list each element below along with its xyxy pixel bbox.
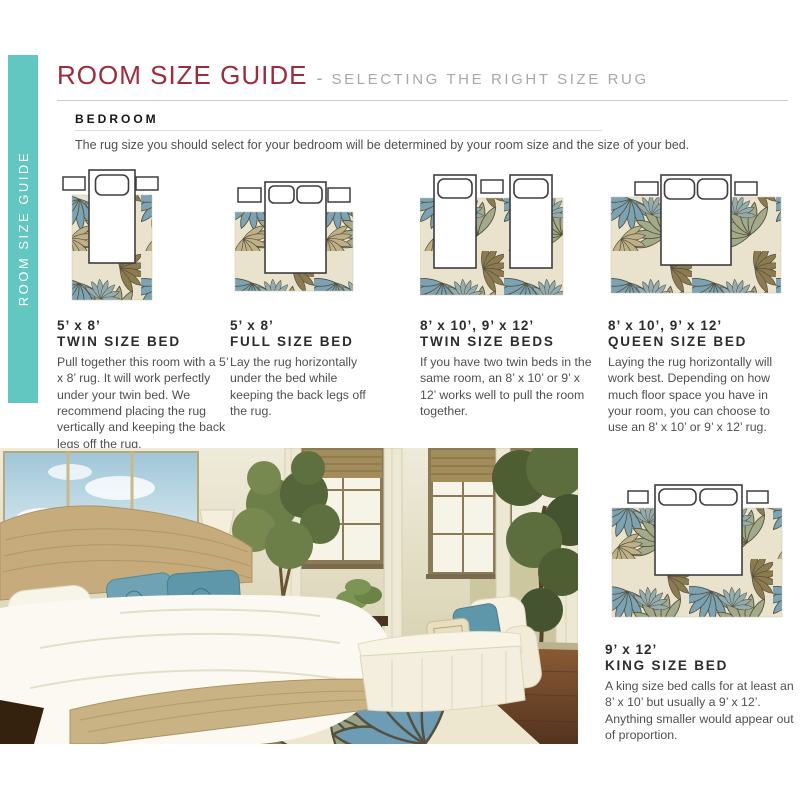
rug-size: 8’ x 10’, 9’ x 12’ <box>420 318 600 333</box>
caption-two-twins: 8’ x 10’, 9’ x 12’ TWIN SIZE BEDS If you… <box>420 318 600 419</box>
guide-column-two-twins: 8’ x 10’, 9’ x 12’ TWIN SIZE BEDS If you… <box>420 167 600 419</box>
section-heading: BEDROOM <box>75 112 788 126</box>
pillow-left <box>659 489 696 505</box>
bed-type: KING SIZE BED <box>605 658 795 673</box>
pillow-left <box>438 179 472 198</box>
rug-size: 5’ x 8’ <box>57 318 233 333</box>
nightstand-right <box>747 491 768 503</box>
bedroom-section: BEDROOM The rug size you should select f… <box>75 112 788 152</box>
nightstand-right <box>136 177 158 190</box>
pillow <box>96 175 129 195</box>
rug-size: 5’ x 8’ <box>230 318 406 333</box>
diagram-two-twin-beds <box>420 167 600 302</box>
bedroom-photo-illustration <box>0 448 578 744</box>
guide-column-full: 5’ x 8’ FULL SIZE BED Lay the rug horizo… <box>230 167 406 419</box>
guide-description: If you have two twin beds in the same ro… <box>420 354 592 419</box>
pillow-right <box>698 179 728 199</box>
nightstand-right <box>328 188 350 202</box>
nightstand-left <box>238 188 261 202</box>
rug-size: 8’ x 10’, 9’ x 12’ <box>608 318 790 333</box>
guide-column-queen: 8’ x 10’, 9’ x 12’ QUEEN SIZE BED Laying… <box>608 167 790 436</box>
bed-type: QUEEN SIZE BED <box>608 334 790 349</box>
nightstand-left <box>635 182 658 195</box>
pillow-left <box>269 186 294 203</box>
side-tab-label: ROOM SIZE GUIDE <box>16 151 31 306</box>
diagram-full-bed-horizontal-rug <box>230 167 406 302</box>
rug-size: 9’ x 12’ <box>605 642 795 657</box>
pillow-left <box>665 179 695 199</box>
page-title: ROOM SIZE GUIDE <box>57 60 307 91</box>
bedroom-photo <box>0 448 578 744</box>
guide-column-twin: 5’ x 8’ TWIN SIZE BED Pull together this… <box>57 167 233 452</box>
section-rule <box>75 130 602 131</box>
caption-full: 5’ x 8’ FULL SIZE BED Lay the rug horizo… <box>230 318 406 419</box>
room-size-guide-side-tab: ROOM SIZE GUIDE <box>8 55 38 403</box>
diagram-twin-bed-vertical-rug <box>57 167 233 302</box>
nightstand-left <box>63 177 85 190</box>
caption-twin: 5’ x 8’ TWIN SIZE BED Pull together this… <box>57 318 233 452</box>
page-header: ROOM SIZE GUIDE - SELECTING THE RIGHT SI… <box>57 60 788 101</box>
nightstand-left <box>628 491 648 503</box>
bed-type: FULL SIZE BED <box>230 334 406 349</box>
caption-king: 9’ x 12’ KING SIZE BED A king size bed c… <box>605 642 795 743</box>
guide-description: Laying the rug horizontally will work be… <box>608 354 790 436</box>
photo-window-center <box>426 448 500 579</box>
guide-description: A king size bed calls for at least an 8’… <box>605 678 795 743</box>
pillow-right <box>700 489 737 505</box>
guide-column-king: 9’ x 12’ KING SIZE BED A king size bed c… <box>605 475 795 743</box>
guide-description: Lay the rug horizontally under the bed w… <box>230 354 370 419</box>
caption-queen: 8’ x 10’, 9’ x 12’ QUEEN SIZE BED Laying… <box>608 318 790 436</box>
nightstand-center <box>481 180 503 193</box>
bed-type: TWIN SIZE BED <box>57 334 233 349</box>
nightstand-right <box>735 182 757 195</box>
bed-type: TWIN SIZE BEDS <box>420 334 600 349</box>
page-subtitle: SELECTING THE RIGHT SIZE RUG <box>331 71 648 88</box>
section-intro: The rug size you should select for your … <box>75 138 788 152</box>
diagram-queen-bed <box>608 167 788 302</box>
title-separator: - <box>316 68 322 89</box>
guide-description: Pull together this room with a 5’ x 8’ r… <box>57 354 233 452</box>
pillow-right <box>297 186 322 203</box>
pillow-right <box>514 179 548 198</box>
diagram-king-bed <box>605 475 790 620</box>
